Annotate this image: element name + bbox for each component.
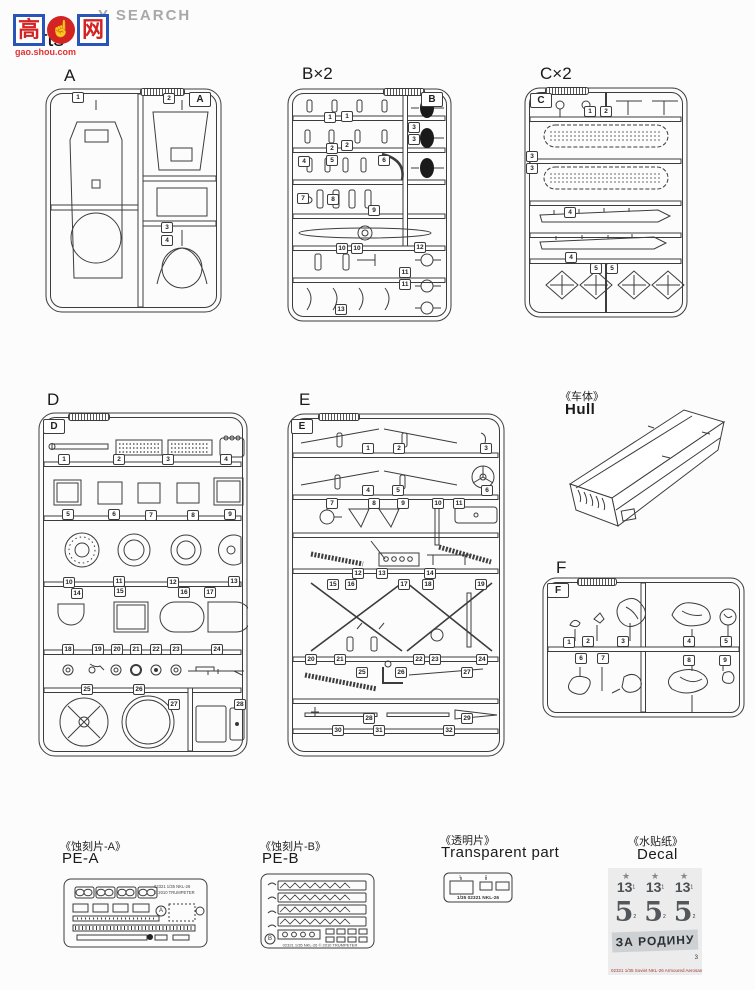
transparent-sprue-text: 1/35 02321 NKL-26 — [457, 895, 499, 901]
part-tag-E-27: 28 — [363, 713, 375, 724]
sprue-c-label: C×2 — [540, 64, 572, 84]
sprue-code — [577, 578, 617, 586]
part-tag-E-6: 7 — [326, 498, 338, 509]
decal-5: 52 — [674, 898, 696, 928]
sprue-d: D 12345678910111213141516171819202122232… — [38, 412, 248, 757]
part-tag-E-11: 12 — [352, 568, 364, 579]
sprue-d-label: D — [47, 390, 59, 410]
part-tag-E-9: 10 — [432, 498, 444, 509]
sprue-c-corner-label: C — [530, 93, 552, 108]
part-tag-F-4: 5 — [720, 636, 732, 647]
part-tag-A-2: 3 — [161, 222, 173, 233]
part-tag-C-2: 3 — [526, 151, 538, 162]
sprue-a-label: A — [64, 66, 75, 86]
part-tag-E-13: 14 — [424, 568, 436, 579]
part-tag-B-10: 8 — [327, 194, 339, 205]
part-tag-D-3: 4 — [220, 454, 232, 465]
pe-b-fret-text: 02321 1/35 NKL-26 © 2010 TRUMPETER — [283, 943, 358, 948]
part-tag-B-2: 2 — [326, 143, 338, 154]
part-tag-B-11: 9 — [368, 205, 380, 216]
part-tag-E-26: 27 — [461, 667, 473, 678]
pe-a-title-en: PE-A — [62, 850, 99, 867]
part-tag-D-4: 5 — [62, 509, 74, 520]
part-tag-E-16: 17 — [398, 579, 410, 590]
part-tag-B-6: 4 — [298, 156, 310, 167]
part-tag-E-24: 25 — [356, 667, 368, 678]
suspension-x-parts — [546, 271, 684, 299]
sprue-code — [68, 413, 110, 421]
part-tag-D-25: 26 — [133, 684, 145, 695]
part-tag-F-6: 7 — [597, 653, 609, 664]
part-tag-C-1: 2 — [600, 106, 612, 117]
part-tag-D-27: 28 — [234, 699, 246, 710]
part-tag-D-23: 24 — [211, 644, 223, 655]
sprue-a-corner-label: A — [189, 92, 211, 107]
transparent-marker-2: 2 — [485, 874, 488, 879]
part-tag-D-14: 15 — [114, 586, 126, 597]
part-tag-D-20: 21 — [130, 644, 142, 655]
decal-title-en: Decal — [637, 846, 678, 863]
part-tag-E-25: 26 — [395, 667, 407, 678]
pe-b-title-en: PE-B — [262, 850, 299, 867]
part-tag-E-30: 31 — [373, 725, 385, 736]
sprue-b-label: B×2 — [302, 64, 333, 84]
part-tag-E-23: 24 — [476, 654, 488, 665]
decal-5: 52 — [644, 898, 666, 928]
sprue-c-drawing — [524, 87, 688, 318]
part-tag-E-17: 18 — [422, 579, 434, 590]
part-tag-D-21: 22 — [150, 644, 162, 655]
thumb-up-icon: ☝ — [47, 16, 75, 44]
propeller-part — [299, 226, 431, 240]
part-tag-C-0: 1 — [584, 106, 596, 117]
part-tag-B-0: 1 — [324, 112, 336, 123]
transparent-sprue: 1 2 1/35 02321 NKL-26 — [443, 872, 513, 903]
decal-13: ★131 — [614, 872, 638, 896]
watermark-search-text: Y SEARCH — [98, 7, 191, 24]
part-tag-E-10: 11 — [453, 498, 465, 509]
sprue-a: A 1234 — [45, 88, 222, 313]
part-tag-B-1: 1 — [341, 111, 353, 122]
sprue-e-corner-label: E — [291, 419, 313, 434]
part-tag-D-22: 23 — [170, 644, 182, 655]
part-tag-D-6: 7 — [145, 510, 157, 521]
sprue-c: C 12334455 — [524, 87, 688, 318]
part-tag-B-16: 12 — [414, 242, 426, 253]
decal-5: 52 — [615, 898, 637, 928]
hull-drawing — [552, 398, 748, 538]
part-tag-E-18: 19 — [475, 579, 487, 590]
sprue-code — [318, 413, 360, 421]
gaoshou-logo: 高 ☝ 网 — [13, 14, 109, 46]
part-tag-D-13: 14 — [71, 588, 83, 599]
part-tag-E-19: 20 — [305, 654, 317, 665]
part-tag-E-4: 5 — [392, 485, 404, 496]
transparent-title-en: Transparent part — [441, 844, 559, 861]
part-tag-B-13: 10 — [351, 243, 363, 254]
sprue-b-corner-label: B — [421, 92, 443, 107]
part-tag-E-28: 29 — [461, 713, 473, 724]
part-tag-D-24: 25 — [81, 684, 93, 695]
part-tag-D-17: 18 — [62, 644, 74, 655]
sprue-f-corner-label: F — [547, 583, 569, 598]
part-tag-E-1: 2 — [393, 443, 405, 454]
sprue-a-drawing — [45, 88, 222, 313]
part-tag-E-7: 8 — [368, 498, 380, 509]
part-tag-E-3: 4 — [362, 485, 374, 496]
part-tag-D-9: 10 — [63, 577, 75, 588]
part-tag-D-19: 20 — [111, 644, 123, 655]
instruction-page: Y SEARCH 高 ☝ 网 gao.shou.com Parts A — [0, 0, 755, 990]
part-tag-D-5: 6 — [108, 509, 120, 520]
part-tag-B-3: 2 — [341, 140, 353, 151]
part-tag-D-12: 13 — [228, 576, 240, 587]
part-tag-E-29: 30 — [332, 725, 344, 736]
part-tag-B-12: 10 — [336, 243, 348, 254]
part-tag-B-4: 3 — [408, 122, 420, 133]
logo-char-left: 高 — [13, 14, 45, 46]
part-tag-A-1: 2 — [163, 93, 175, 104]
part-tag-C-3: 3 — [526, 163, 538, 174]
part-tag-B-15: 11 — [399, 279, 411, 290]
pe-a-fret: A 02321 1/35 NKL-26 © 2010 TRUMPETER — [63, 878, 208, 948]
part-tag-E-15: 16 — [345, 579, 357, 590]
sprue-b: B 112233456789101011111213 — [287, 88, 452, 322]
part-tag-B-9: 7 — [297, 193, 309, 204]
part-tag-E-2: 3 — [480, 443, 492, 454]
part-tag-E-14: 15 — [327, 579, 339, 590]
pe-a-circled-letter: A — [159, 908, 163, 914]
part-tag-B-7: 5 — [326, 155, 338, 166]
sprue-e-label: E — [299, 390, 310, 410]
decal-13-row: ★131 ★131 ★131 — [608, 868, 702, 896]
part-tag-C-4: 4 — [564, 207, 576, 218]
decal-slogan: ЗА РОДИНУ — [612, 930, 699, 953]
decal-bottom-text: 02321 1/35 Soviet NKL-26 Armoured Aerosa… — [611, 968, 702, 973]
part-tag-E-0: 1 — [362, 443, 374, 454]
part-tag-E-21: 22 — [413, 654, 425, 665]
sprue-f: F 123456789 — [542, 577, 745, 718]
part-tag-F-8: 9 — [719, 655, 731, 666]
part-tag-A-0: 1 — [72, 92, 84, 103]
part-tag-C-6: 5 — [590, 263, 602, 274]
watermark-url: gao.shou.com — [15, 47, 76, 57]
part-tag-D-15: 16 — [178, 587, 190, 598]
pe-b-fret: B 02321 1/35 NKL-26 © 2010 TRUMPETER — [260, 873, 375, 949]
ski-part — [544, 125, 668, 189]
part-tag-F-5: 6 — [575, 653, 587, 664]
part-tag-E-8: 9 — [397, 498, 409, 509]
decal-marker-3: 3 — [695, 955, 698, 961]
part-tag-E-22: 23 — [429, 654, 441, 665]
part-tag-F-2: 3 — [617, 636, 629, 647]
sprue-f-label: F — [556, 558, 566, 578]
part-tag-D-2: 3 — [162, 454, 174, 465]
part-tag-D-18: 19 — [92, 644, 104, 655]
part-tag-D-0: 1 — [58, 454, 70, 465]
part-tag-A-3: 4 — [161, 235, 173, 246]
part-tag-C-7: 5 — [606, 263, 618, 274]
logo-char-right: 网 — [77, 14, 109, 46]
part-tag-C-5: 4 — [565, 252, 577, 263]
part-tag-B-17: 13 — [335, 304, 347, 315]
decal-sheet: ★131 ★131 ★131 52 52 52 ЗА РОДИНУ 3 0232… — [608, 868, 702, 975]
part-tag-D-8: 9 — [224, 509, 236, 520]
sprue-e-drawing — [287, 413, 505, 757]
part-tag-F-7: 8 — [683, 655, 695, 666]
part-tag-D-16: 17 — [204, 587, 216, 598]
part-tag-D-7: 8 — [187, 510, 199, 521]
pe-a-fret-text-1: 02321 1/35 NKL-26 — [154, 884, 191, 889]
part-tag-E-31: 32 — [443, 725, 455, 736]
pe-a-fret-text-2: © 2010 TRUMPETER — [154, 890, 195, 895]
part-tag-D-26: 27 — [168, 699, 180, 710]
decal-13: ★131 — [672, 872, 696, 896]
decal-13: ★131 — [643, 872, 667, 896]
decal-5-row: 52 52 52 — [608, 898, 702, 928]
rifle-part — [188, 667, 244, 675]
part-tag-B-5: 3 — [408, 134, 420, 145]
part-tag-F-1: 2 — [582, 636, 594, 647]
part-tag-E-12: 13 — [376, 568, 388, 579]
part-tag-B-14: 11 — [399, 267, 411, 278]
sprue-d-corner-label: D — [43, 419, 65, 434]
sprue-e: E 12345678910111213141516171819202122232… — [287, 413, 505, 757]
part-tag-D-11: 12 — [167, 577, 179, 588]
part-tag-B-8: 6 — [378, 155, 390, 166]
sprue-code — [383, 88, 425, 96]
part-tag-E-20: 21 — [334, 654, 346, 665]
part-tag-D-1: 2 — [113, 454, 125, 465]
pe-b-circled-letter: B — [268, 936, 272, 942]
part-tag-E-5: 6 — [481, 485, 493, 496]
part-tag-F-3: 4 — [683, 636, 695, 647]
part-tag-F-0: 1 — [563, 637, 575, 648]
